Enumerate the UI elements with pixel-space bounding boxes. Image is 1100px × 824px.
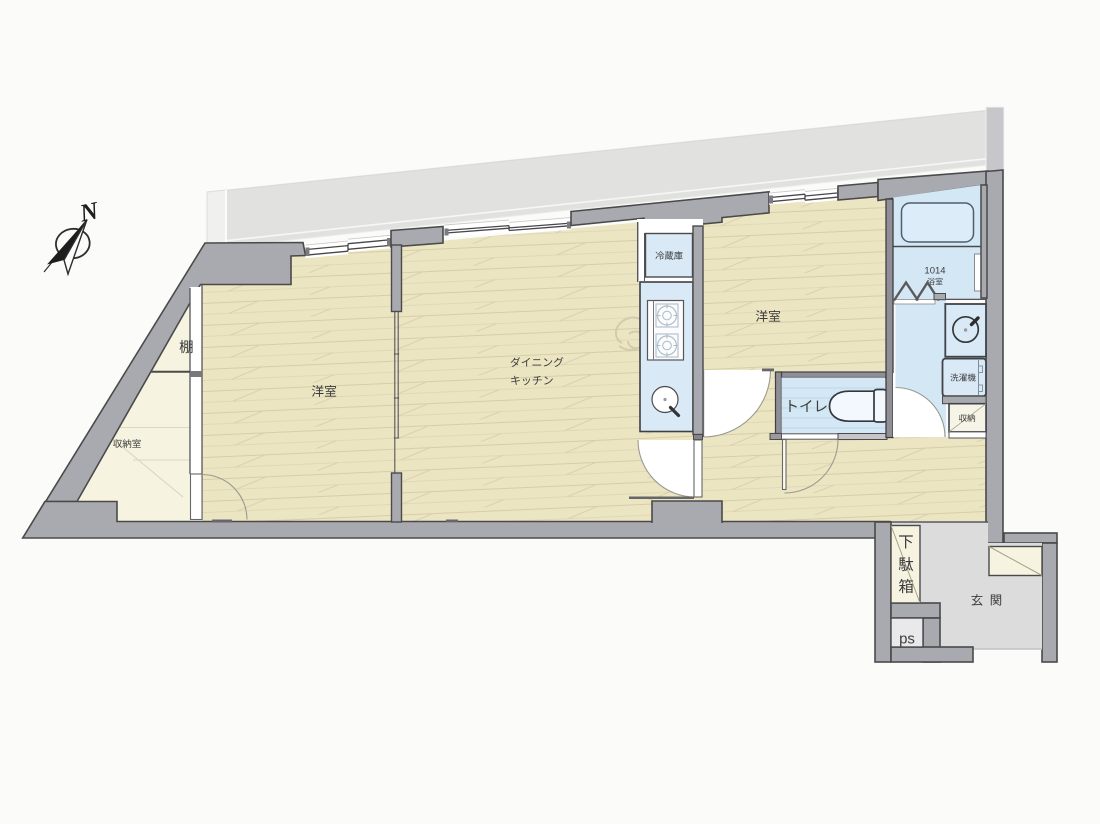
svg-text:1014: 1014	[924, 266, 945, 277]
svg-text:ps: ps	[899, 631, 915, 648]
